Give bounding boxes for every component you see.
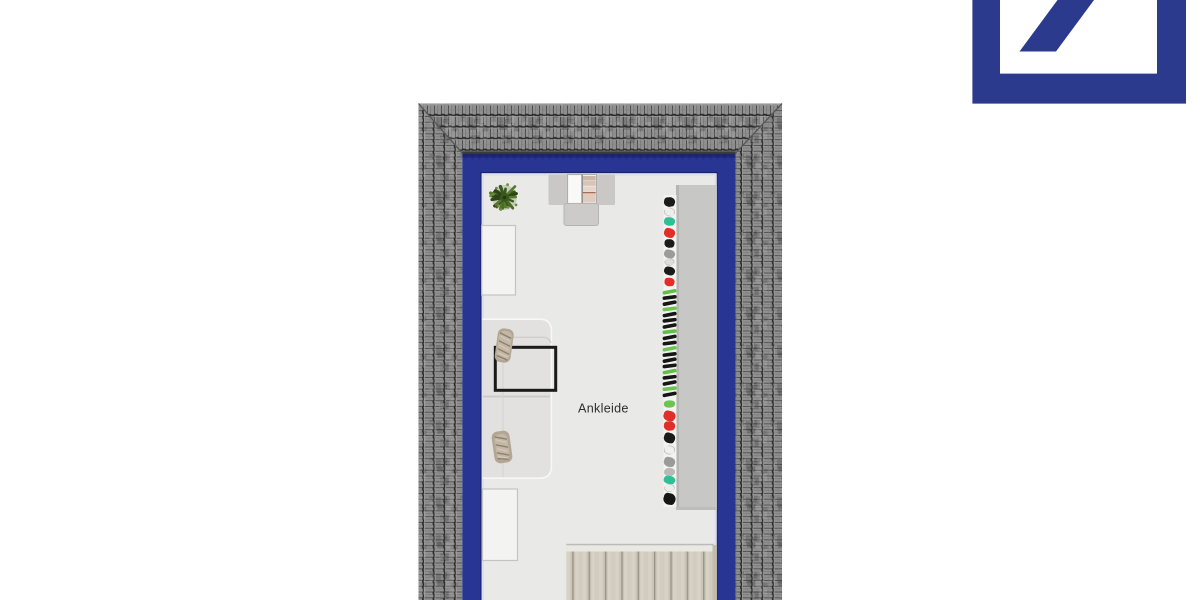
svg-text:Ankleide: Ankleide — [578, 402, 629, 416]
